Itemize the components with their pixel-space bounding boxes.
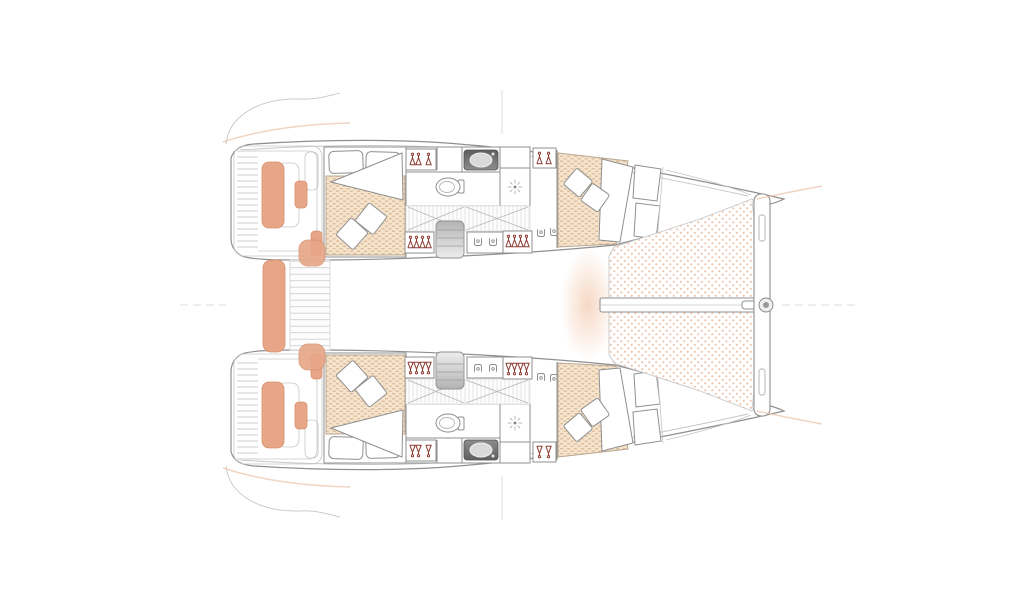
sink-bowl — [470, 153, 492, 167]
forestay-pin — [763, 302, 769, 308]
cockpit-steps — [290, 260, 330, 350]
mooring-line-starboard — [757, 411, 822, 424]
shower-head-icon — [508, 180, 522, 194]
toilet — [436, 178, 464, 196]
wardrobe-box — [406, 149, 436, 170]
teak-deck — [237, 150, 258, 252]
wardrobe — [503, 231, 532, 253]
floor-plan-page — [0, 0, 1024, 600]
wardrobe-aft-top — [406, 149, 436, 170]
cockpit-bench-cushion — [263, 260, 285, 352]
bench-corner-cushion — [299, 240, 325, 266]
storage-bin-icon — [475, 238, 482, 245]
wardrobe-box — [533, 148, 556, 168]
cockpit-cushion-small — [295, 181, 307, 208]
bench-corner-cushion — [299, 344, 325, 370]
corridor-floor — [406, 206, 530, 231]
wardrobe-forward-top — [533, 148, 556, 168]
shelf-storage — [467, 232, 503, 253]
steps-box — [436, 221, 464, 258]
seat-panel — [633, 165, 661, 201]
stern-accent-line — [223, 123, 350, 142]
aft-double-cabin — [324, 147, 406, 257]
bathroom — [406, 147, 530, 206]
faucet-icon — [492, 153, 495, 156]
washbasin — [464, 150, 498, 170]
floor-plan-canvas — [0, 0, 1024, 600]
shower — [500, 168, 530, 206]
passageway — [406, 206, 530, 231]
storage-bin-icon — [490, 238, 497, 245]
wardrobe — [405, 232, 434, 253]
storage-bin-icon — [551, 228, 558, 235]
pillow — [329, 150, 364, 173]
shelf-box — [467, 232, 503, 253]
mooring-line-port — [757, 186, 822, 199]
cockpit-cushion — [262, 162, 284, 228]
storage-bin-icon — [538, 229, 545, 236]
companionway-steps — [436, 221, 464, 258]
